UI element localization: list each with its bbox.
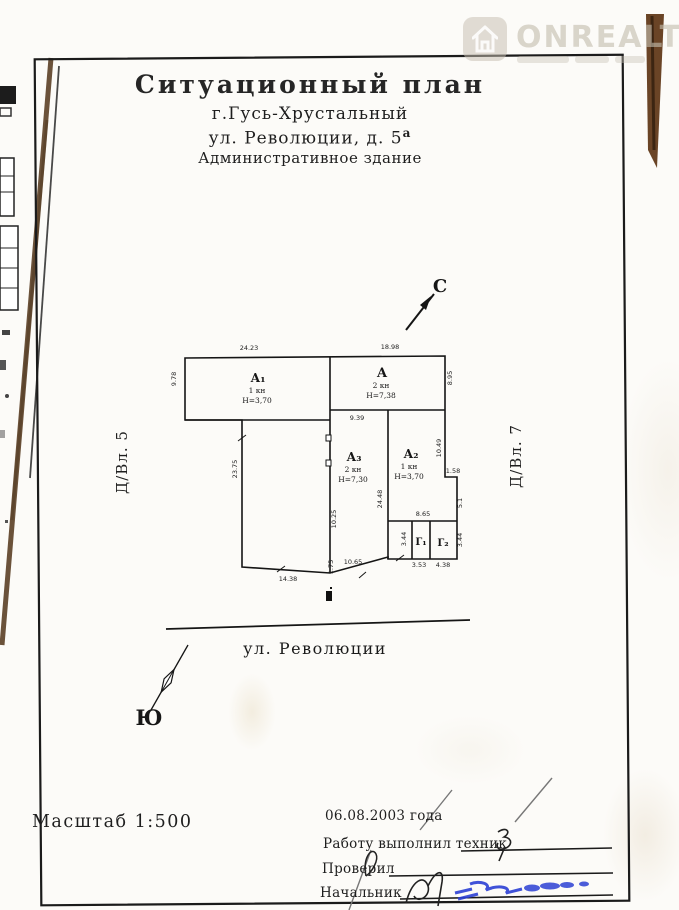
room-litera: Г₁ bbox=[415, 537, 426, 548]
building-type-line: Административное здание bbox=[110, 149, 510, 167]
date-label: 06.08.2003 года bbox=[325, 808, 443, 824]
scanned-plan-page: ONREALT bbox=[0, 0, 679, 910]
room-litera: А bbox=[377, 366, 388, 381]
logo-subtext-bar bbox=[517, 56, 569, 63]
dim-label: 24.48 bbox=[376, 490, 384, 509]
dim-label: 18.98 bbox=[381, 343, 400, 351]
room-storeys: 2 кн bbox=[345, 465, 362, 474]
onrealt-logo-text: ONREALT bbox=[516, 20, 679, 55]
dim-label: 8.95 bbox=[446, 371, 454, 385]
room-litera: А₂ bbox=[403, 447, 418, 461]
room-litera: А₃ bbox=[346, 450, 361, 464]
logo-subtext-bar bbox=[615, 56, 645, 63]
dim-label: 8.65 bbox=[416, 510, 430, 518]
room-height: Н=7,30 bbox=[338, 475, 368, 484]
street-and-south-arrow: ул. Революции Ю bbox=[135, 620, 470, 730]
dim-label: 3.44 bbox=[456, 533, 464, 547]
north-label: С bbox=[433, 276, 447, 297]
dim-label: 9.39 bbox=[350, 414, 364, 422]
street-name-label: ул. Революции bbox=[243, 639, 387, 658]
house-icon bbox=[472, 25, 498, 53]
address-letter-sup: а bbox=[403, 126, 412, 140]
dim-label: 3.44 bbox=[400, 532, 408, 546]
dim-label: 10.65 bbox=[344, 558, 363, 566]
neighbor-right-label: Д/Вл. 7 bbox=[507, 416, 525, 496]
dim-label: 10.49 bbox=[435, 439, 443, 458]
dim-label: 10.25 bbox=[330, 510, 338, 529]
dim-label: 9.78 bbox=[170, 372, 178, 386]
logo-subtext-bar bbox=[575, 56, 609, 63]
dim-label: 3.53 bbox=[412, 561, 426, 569]
room-height: Н=7,38 bbox=[366, 391, 396, 400]
dim-label: 4.38 bbox=[436, 561, 450, 569]
address-line: ул. Революции, д. 5а bbox=[110, 126, 510, 149]
address-text: ул. Революции, д. 5 bbox=[209, 129, 403, 149]
south-label: Ю bbox=[135, 705, 162, 730]
executed-by-label: Работу выполнил техник bbox=[323, 836, 507, 852]
dim-label: 1.58 bbox=[446, 467, 460, 475]
room-storeys: 1 кн bbox=[401, 462, 418, 471]
city-line: г.Гусь-Хрустальный bbox=[110, 104, 510, 124]
page-title: Ситуационный план bbox=[110, 70, 510, 99]
neighbor-left-label: Д/Вл. 5 bbox=[113, 422, 131, 502]
room-storeys: 1 кн bbox=[249, 386, 266, 395]
scan-edge-artifacts-left bbox=[0, 58, 59, 645]
dim-label: 5.1 bbox=[456, 498, 464, 508]
room-litera: Г₂ bbox=[437, 538, 448, 549]
scale-label: Масштаб 1:500 bbox=[32, 812, 193, 832]
onrealt-logo-box bbox=[463, 17, 507, 61]
dim-label: 14.38 bbox=[279, 575, 298, 583]
dim-label: 1.75 bbox=[327, 560, 335, 574]
north-arrow-icon: С bbox=[406, 276, 447, 330]
south-arrow-icon bbox=[151, 645, 188, 710]
dim-label: 23.75 bbox=[231, 460, 239, 479]
chief-label: Начальник bbox=[320, 885, 402, 901]
room-height: Н=3,70 bbox=[242, 396, 272, 405]
gate-mark bbox=[326, 591, 332, 601]
room-height: Н=3,70 bbox=[394, 472, 424, 481]
dim-label: 24.23 bbox=[240, 344, 259, 352]
room-storeys: 2 кн bbox=[373, 381, 390, 390]
room-litera: А₁ bbox=[250, 371, 265, 385]
checked-by-label: Проверил bbox=[322, 861, 395, 877]
